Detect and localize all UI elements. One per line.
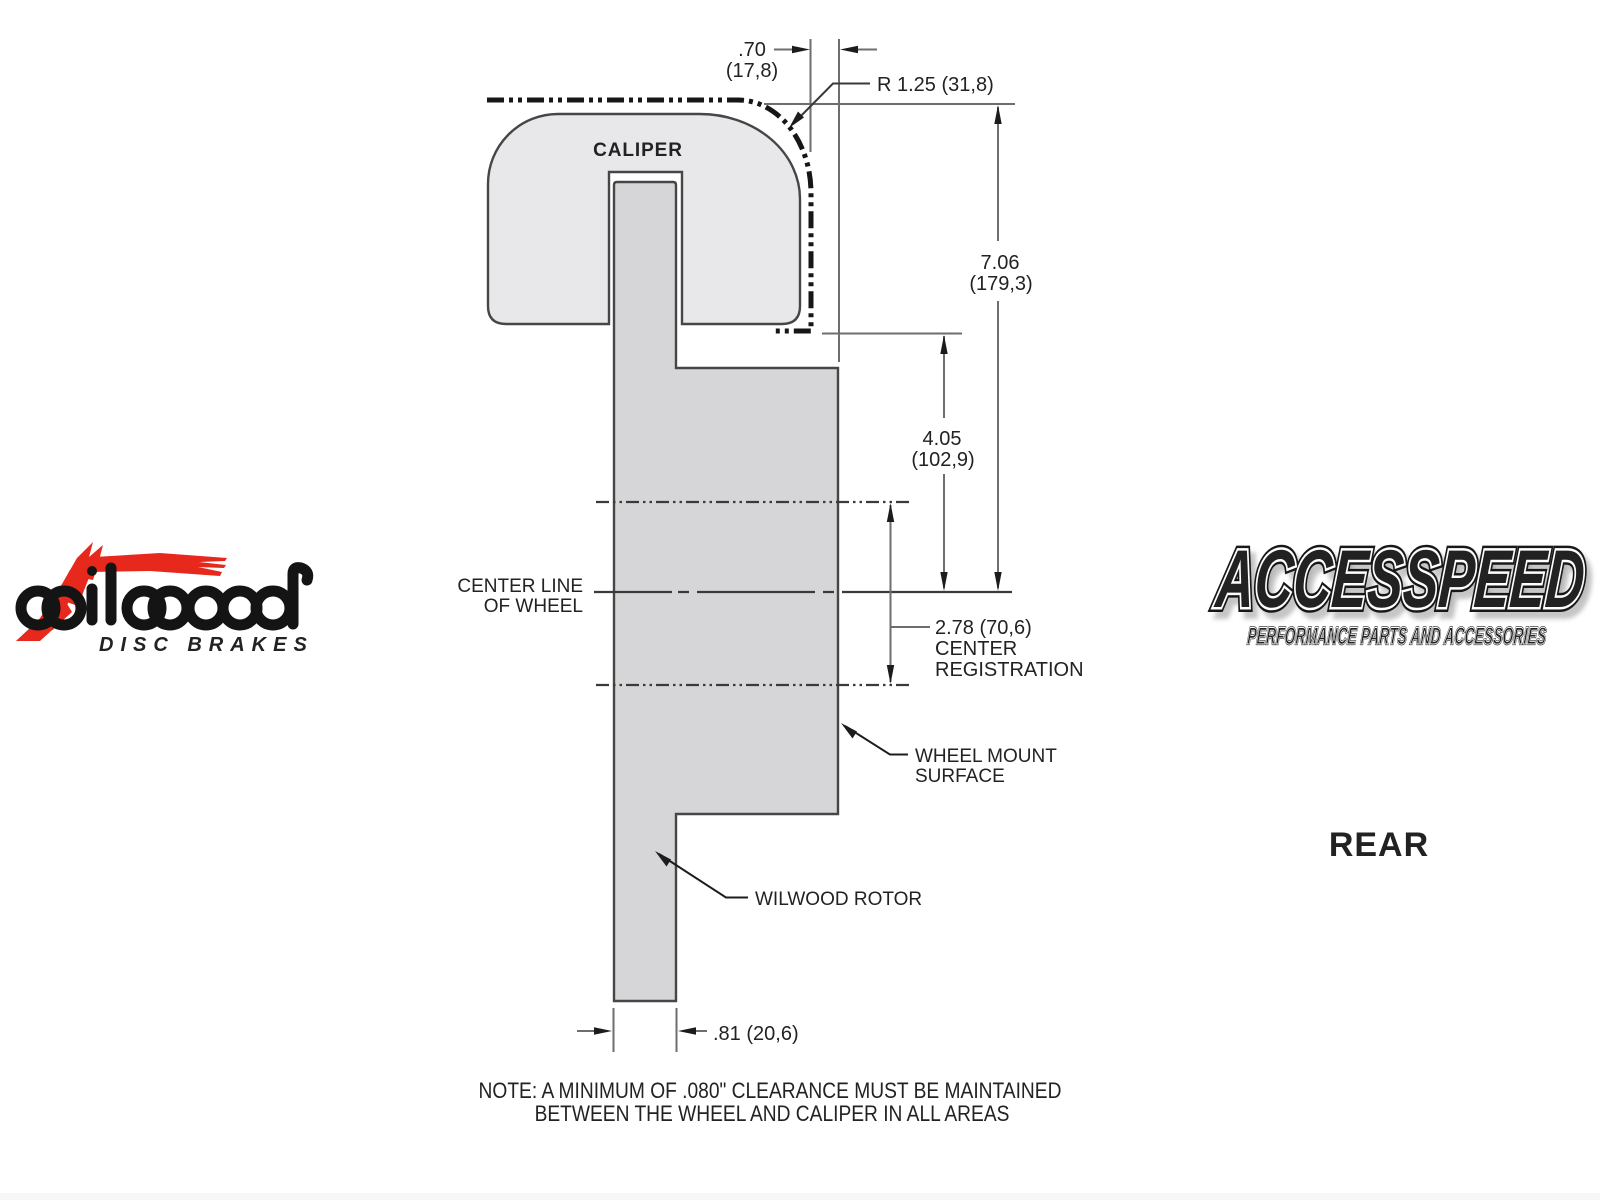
svg-text:SURFACE: SURFACE [915,766,1005,787]
svg-text:PERFORMANCE PARTS AND ACCESSOR: PERFORMANCE PARTS AND ACCESSORIES [1247,623,1548,650]
svg-text:REGISTRATION: REGISTRATION [935,659,1084,681]
svg-text:BETWEEN THE WHEEL AND CALIPER: BETWEEN THE WHEEL AND CALIPER IN ALL ARE… [535,1102,1010,1127]
svg-text:CENTER LINE: CENTER LINE [457,576,583,597]
svg-text:CALIPER: CALIPER [593,140,683,161]
svg-text:.81 (20,6): .81 (20,6) [713,1023,799,1045]
svg-text:7.06: 7.06 [981,252,1020,274]
svg-text:(17,8): (17,8) [726,60,778,82]
svg-text:REAR: REAR [1329,826,1429,864]
svg-text:WILWOOD ROTOR: WILWOOD ROTOR [755,889,922,910]
svg-text:ACCESSPEED: ACCESSPEED [1212,534,1588,625]
svg-text:NOTE: A MINIMUM OF .080" CLEAR: NOTE: A MINIMUM OF .080" CLEARANCE MUST … [479,1079,1062,1104]
svg-text:R 1.25 (31,8): R 1.25 (31,8) [877,74,994,96]
svg-text:(102,9): (102,9) [911,449,974,471]
svg-text:4.05: 4.05 [923,428,962,450]
svg-text:.70: .70 [738,39,766,61]
svg-text:DISC BRAKES: DISC BRAKES [99,634,314,656]
svg-text:WHEEL MOUNT: WHEEL MOUNT [915,746,1057,767]
svg-text:OF WHEEL: OF WHEEL [484,596,583,617]
svg-text:(179,3): (179,3) [969,273,1032,295]
svg-text:2.78 (70,6): 2.78 (70,6) [935,617,1032,639]
svg-text:CENTER: CENTER [935,638,1017,660]
